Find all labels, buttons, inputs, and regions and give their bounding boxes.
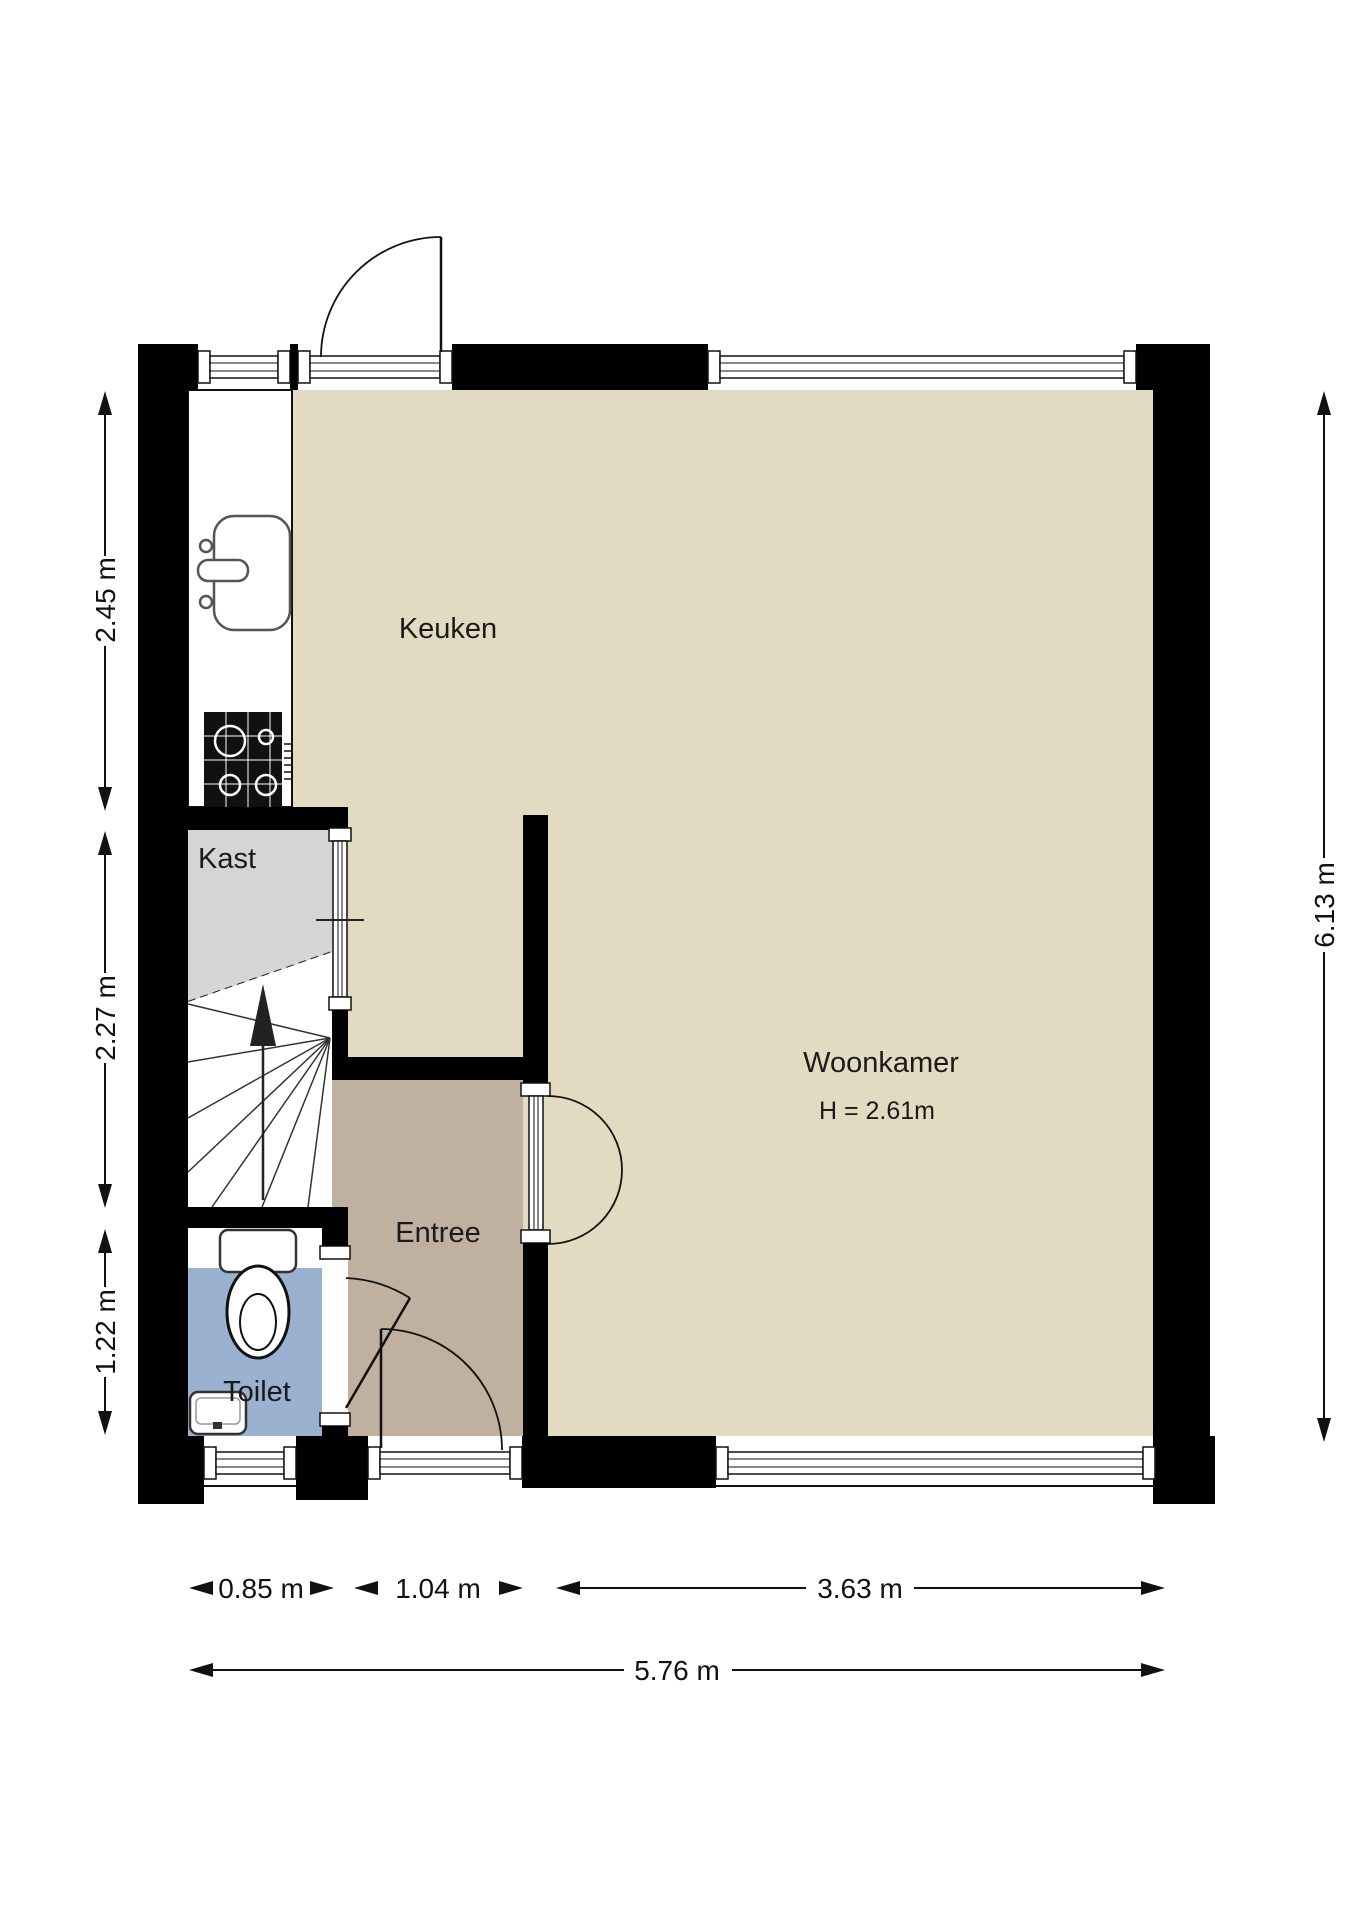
- wall-south: [138, 1436, 204, 1504]
- toilet-fixture: [220, 1230, 296, 1358]
- dim-bottom-entree-label: 1.04 m: [395, 1573, 481, 1604]
- wall-north: [290, 344, 298, 390]
- kast-label: Kast: [198, 843, 256, 875]
- kitchen-window: [198, 351, 290, 383]
- stove: [204, 712, 291, 808]
- wall-entree-north: [332, 1057, 548, 1080]
- floorplan-page: Keuken Woonkamer H = 2.61m Kast Entree T…: [0, 0, 1358, 1920]
- dimension-bottom-toilet: 0.85 m: [189, 1573, 334, 1604]
- wall-east: [1153, 344, 1210, 1488]
- dim-right-total-label: 6.13 m: [1309, 862, 1340, 948]
- keuken-label: Keuken: [399, 613, 497, 645]
- toilet-bowl: [227, 1266, 289, 1358]
- dim-left-bottom-label: 1.22 m: [90, 1289, 121, 1375]
- dimension-bottom-total: 5.76 m: [189, 1655, 1165, 1686]
- back-door: [298, 237, 452, 383]
- wall-north: [138, 344, 198, 390]
- wall-south: [296, 1436, 368, 1500]
- woonkamer-south-window: [716, 1447, 1155, 1486]
- floorplan-drawing: Keuken Woonkamer H = 2.61m Kast Entree T…: [0, 0, 1358, 1920]
- dim-left-middle-label: 2.27 m: [90, 975, 121, 1061]
- dimension-left-middle: 2.27 m: [90, 831, 121, 1208]
- wall-north: [1136, 344, 1210, 390]
- wall-west: [138, 344, 188, 1488]
- wall-stairs-east: [332, 1010, 348, 1057]
- dim-bottom-total-label: 5.76 m: [634, 1655, 720, 1686]
- dim-bottom-toilet-label: 0.85 m: [218, 1573, 304, 1604]
- wall-south: [522, 1436, 716, 1488]
- wall-south: [1153, 1436, 1215, 1504]
- wall-north: [452, 344, 708, 390]
- dim-bottom-woonkamer-label: 3.63 m: [817, 1573, 903, 1604]
- woonkamer-north-window: [708, 351, 1136, 383]
- dim-left-top-label: 2.45 m: [90, 557, 121, 643]
- wall-kast-north: [188, 807, 348, 830]
- entree-label: Entree: [395, 1217, 480, 1249]
- dimension-bottom-woonkamer: 3.63 m: [556, 1573, 1165, 1604]
- faucet-handle-icon: [200, 540, 212, 552]
- dimension-bottom-entree: 1.04 m: [354, 1573, 523, 1604]
- faucet-icon: [198, 560, 248, 581]
- toilet-label: Toilet: [223, 1376, 291, 1408]
- toilet-window: [204, 1447, 296, 1486]
- woonkamer-label: Woonkamer: [803, 1047, 959, 1079]
- dimension-right-total: 6.13 m: [1309, 391, 1340, 1442]
- woonkamer-ceiling-height-label: H = 2.61m: [819, 1097, 935, 1125]
- faucet-handle-icon: [200, 596, 212, 608]
- dimension-left-top: 2.45 m: [90, 391, 121, 811]
- dimension-left-bottom: 1.22 m: [90, 1229, 121, 1435]
- basin-tap-icon: [213, 1422, 222, 1429]
